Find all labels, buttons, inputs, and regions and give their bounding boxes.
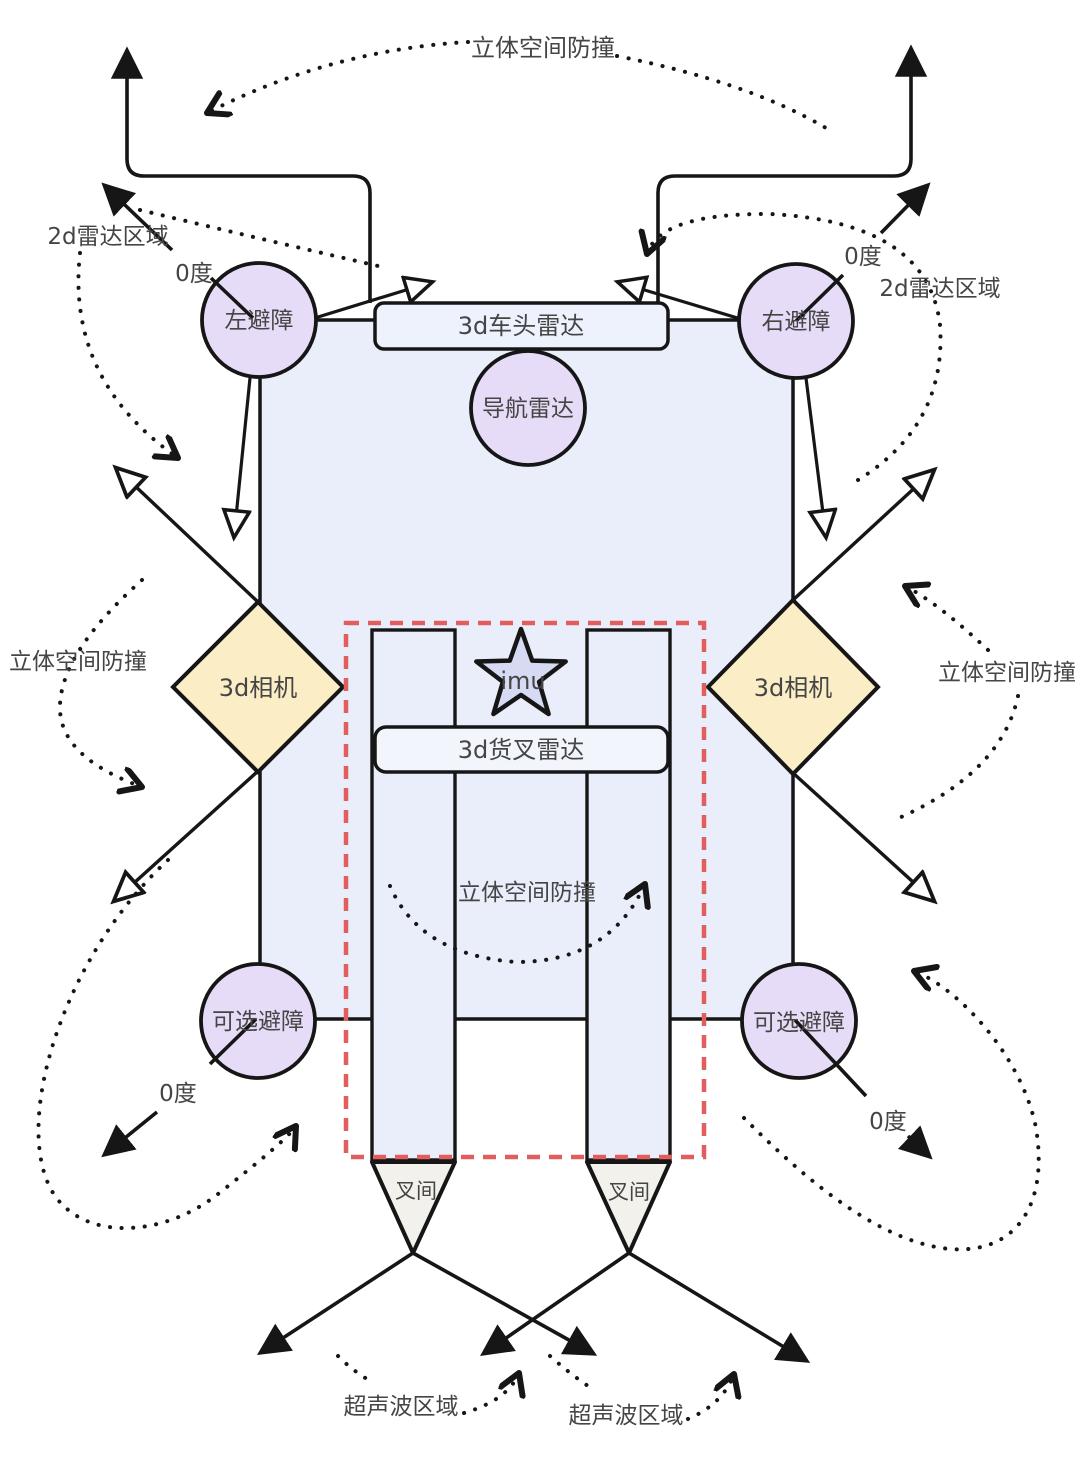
- label-fork-gap-right: 叉间: [608, 1180, 650, 1204]
- diagram-canvas: 立体空间防撞 2d雷达区域 2d雷达区域 0度 0度 左避障 右避障 3d车头雷…: [0, 0, 1080, 1458]
- arc-ultrasonic-left-out: [464, 1373, 519, 1413]
- arc-2d-left: [140, 210, 387, 268]
- fork-tip-right-triangle: [587, 1162, 670, 1253]
- label-fork-radar: 3d货叉雷达: [458, 736, 585, 764]
- label-2d-radar-left: 2d雷达区域: [47, 224, 168, 250]
- agv-sensor-diagram: 立体空间防撞 2d雷达区域 2d雷达区域 0度 0度 左避障 右避障 3d车头雷…: [0, 0, 1080, 1458]
- label-ultrasonic-right: 超声波区域: [569, 1403, 684, 1429]
- ultrasonic-beams: [260, 1253, 807, 1361]
- label-stereo-left: 立体空间防撞: [9, 649, 147, 675]
- label-camera-left: 3d相机: [219, 674, 298, 702]
- zero-bl-outer: [104, 1112, 157, 1155]
- arc-top-center-left: [207, 42, 468, 113]
- label-zero-tr: 0度: [844, 244, 882, 270]
- label-stereo-right: 立体空间防撞: [938, 660, 1076, 686]
- lidar-left-down: [234, 378, 250, 537]
- arc-2d-left-outer: [78, 253, 178, 458]
- beam-lt-left: [260, 1253, 413, 1353]
- label-stereo-top: 立体空间防撞: [471, 34, 615, 62]
- label-right-avoid: 右避障: [762, 309, 831, 335]
- beam-rt-right: [629, 1253, 807, 1361]
- lidar-right-down: [806, 378, 826, 537]
- fov-left-down: [114, 772, 257, 901]
- label-head-radar: 3d车头雷达: [458, 312, 585, 340]
- label-imu: imu: [500, 667, 545, 695]
- label-zero-bl: 0度: [159, 1081, 197, 1107]
- fork-bar-right: [587, 630, 670, 1160]
- label-zero-br: 0度: [869, 1109, 907, 1135]
- fov-left-up: [116, 468, 258, 602]
- fork-bar-left: [372, 630, 455, 1160]
- fork-tip-left-triangle: [372, 1162, 455, 1253]
- arc-ultrasonic-left-in: [338, 1356, 367, 1379]
- label-nav-radar: 导航雷达: [482, 396, 574, 422]
- fov-right-down: [793, 773, 934, 901]
- arc-stereo-left: [60, 580, 142, 787]
- label-ultrasonic-left: 超声波区域: [344, 1394, 459, 1420]
- label-optional-avoid-right: 可选避障: [753, 1010, 845, 1036]
- zero-br-outer: [908, 1136, 930, 1157]
- fov-right-up: [793, 470, 934, 600]
- label-left-avoid: 左避障: [225, 308, 294, 334]
- arc-top-center-right: [617, 56, 826, 128]
- arc-ultrasonic-right-in: [550, 1356, 591, 1388]
- arc-ultrasonic-right-out: [688, 1374, 734, 1419]
- label-stereo-middle: 立体空间防撞: [458, 880, 596, 906]
- label-fork-gap-left: 叉间: [395, 1179, 437, 1203]
- arc-stereo-right-up: [905, 586, 988, 650]
- label-camera-right: 3d相机: [754, 674, 833, 702]
- arc-stereo-right-down: [899, 696, 1018, 818]
- label-optional-avoid-left: 可选避障: [212, 1009, 304, 1035]
- zero-tr-outer: [881, 185, 928, 233]
- label-zero-tl: 0度: [175, 261, 213, 287]
- label-2d-radar-right: 2d雷达区域: [879, 276, 1000, 302]
